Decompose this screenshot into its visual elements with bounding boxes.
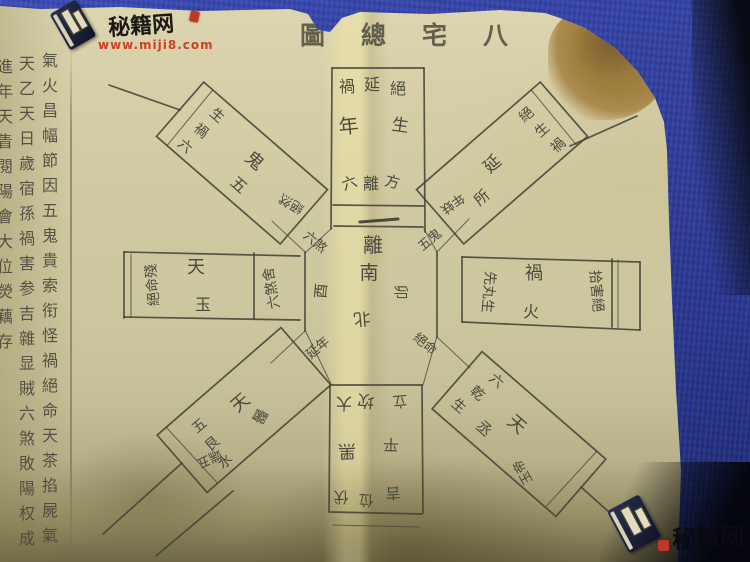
box-ur-char: 禍	[548, 135, 569, 156]
diagram-line	[124, 317, 300, 320]
bottom-arm-char: 位	[358, 491, 374, 510]
watermark-site-name: 秘籍网	[671, 516, 745, 555]
diagram-line	[570, 116, 637, 146]
top-arm-char: 離	[363, 174, 379, 193]
box-lr-char: 生	[448, 396, 469, 417]
photo-of-manuscript: 進年天眚閱陽會大位熒藕存 天乙天日歲宿孫禍害参吉雜显賊六煞敗陽权成存 氣火昌幅節…	[0, 0, 750, 562]
box-ul-cluster: 絕然	[276, 190, 307, 217]
diagram-line	[422, 385, 423, 513]
diagram-line	[103, 463, 182, 534]
bottom-arm-char: 大	[336, 394, 352, 413]
box-ul-char: 禍	[190, 121, 211, 142]
right-arm-char: 火	[523, 302, 539, 321]
center-direction-east: 卯	[392, 284, 410, 299]
red-seal-icon	[658, 540, 669, 551]
bottom-arm-char: 吉	[385, 484, 401, 503]
box-ur-char: 生	[532, 120, 553, 141]
box-ll-char: 醫	[248, 405, 271, 427]
diagram-line	[333, 525, 419, 527]
watermark-top-left: 秘籍网 www.miji8.com	[58, 2, 228, 56]
diagram-line	[156, 491, 233, 556]
right-arm-char: 禍	[525, 263, 543, 284]
diagram-line	[331, 68, 332, 229]
top-arm-char: 絕	[390, 79, 406, 98]
box-lr-char: 丞	[472, 417, 495, 440]
right-arm-cluster: 先丸生	[478, 270, 498, 313]
left-arm-cluster: 絕命殘	[142, 263, 163, 306]
box-upper-left: 生 禍 六 鬼 五 絕然	[156, 82, 327, 244]
box-ll-char: 五	[189, 415, 210, 436]
watermark-site-url: www.miji8.com	[98, 38, 214, 52]
box-ul-char: 五	[227, 172, 252, 197]
box-ul-char: 生	[206, 105, 227, 126]
left-arm: 絕命殘 天 玉 六煞舍	[124, 252, 300, 320]
center-trigram-li: 離	[363, 233, 383, 257]
corner-annotation-lr: 絕命	[410, 330, 440, 359]
right-arm: 先丸生 禍 火 拾害絕	[462, 257, 640, 330]
top-arm-char: 禍	[339, 77, 355, 96]
top-arm-char: 方	[383, 171, 402, 192]
box-lr-char: 六	[486, 370, 507, 391]
center-direction-south: 南	[359, 262, 378, 284]
top-arm-char: 生	[390, 115, 410, 137]
diagram-line	[333, 205, 424, 206]
bottom-arm-char: 坎	[357, 389, 376, 410]
box-lr-char: 乾	[467, 383, 488, 404]
center-direction-west: 酉	[311, 283, 330, 300]
book-icon	[607, 494, 661, 553]
diagram-line	[329, 385, 330, 512]
diagram-line	[109, 85, 180, 110]
box-ul-char: 鬼	[241, 147, 268, 175]
diagram-line	[462, 322, 640, 330]
left-arm-cluster: 六煞舍	[260, 266, 283, 310]
top-arm-char: 延	[364, 75, 380, 94]
diagram-line	[272, 221, 305, 252]
box-ur-char: 絕	[516, 104, 537, 125]
box-ur-cluster: 年蚨	[437, 189, 467, 216]
top-arm-char: 六	[339, 172, 359, 194]
box-ll-char: 天	[227, 389, 254, 417]
watermark-site-name: 秘籍网	[107, 6, 175, 43]
diagram-line	[124, 252, 300, 256]
diagram-line	[424, 68, 425, 232]
box-lower-right: 六 乾 生 天 丞 玉帝	[432, 352, 606, 517]
corner-annotation-ur: 五鬼	[415, 226, 445, 255]
box-lr-cluster: 玉帝	[510, 457, 537, 488]
diagram-line	[462, 257, 640, 262]
bottom-arm-char: 黑	[338, 440, 357, 462]
box-lr-char: 天	[503, 411, 530, 439]
bottom-arm: 大 坎 立 黑 平 伏 位 吉	[329, 385, 423, 527]
center-direction-north: 北	[353, 307, 372, 328]
center-square: 離 南 酉 卯 北	[271, 219, 470, 385]
diagram-line	[437, 337, 470, 368]
top-arm: 禍 延 絕 年 生 六 離 方	[331, 68, 425, 232]
right-arm-cluster: 拾害絕	[586, 269, 606, 312]
box-ur-char: 所	[470, 186, 493, 209]
diagram-line	[360, 219, 398, 222]
watermark-bottom-right: 秘籍网	[608, 496, 750, 562]
red-seal-icon	[189, 10, 200, 23]
left-arm-char: 玉	[195, 295, 211, 314]
left-arm-char: 天	[187, 257, 205, 278]
bottom-arm-char: 立	[392, 391, 409, 410]
bottom-arm-char: 伏	[333, 488, 348, 506]
bottom-arm-char: 平	[383, 435, 400, 455]
box-ur-char: 延	[480, 151, 506, 177]
box-upper-right: 絕 生 禍 延 所 年蚨	[416, 82, 587, 244]
diagram-line	[330, 512, 422, 514]
top-arm-char: 年	[337, 113, 359, 139]
diagram-line	[334, 226, 423, 227]
